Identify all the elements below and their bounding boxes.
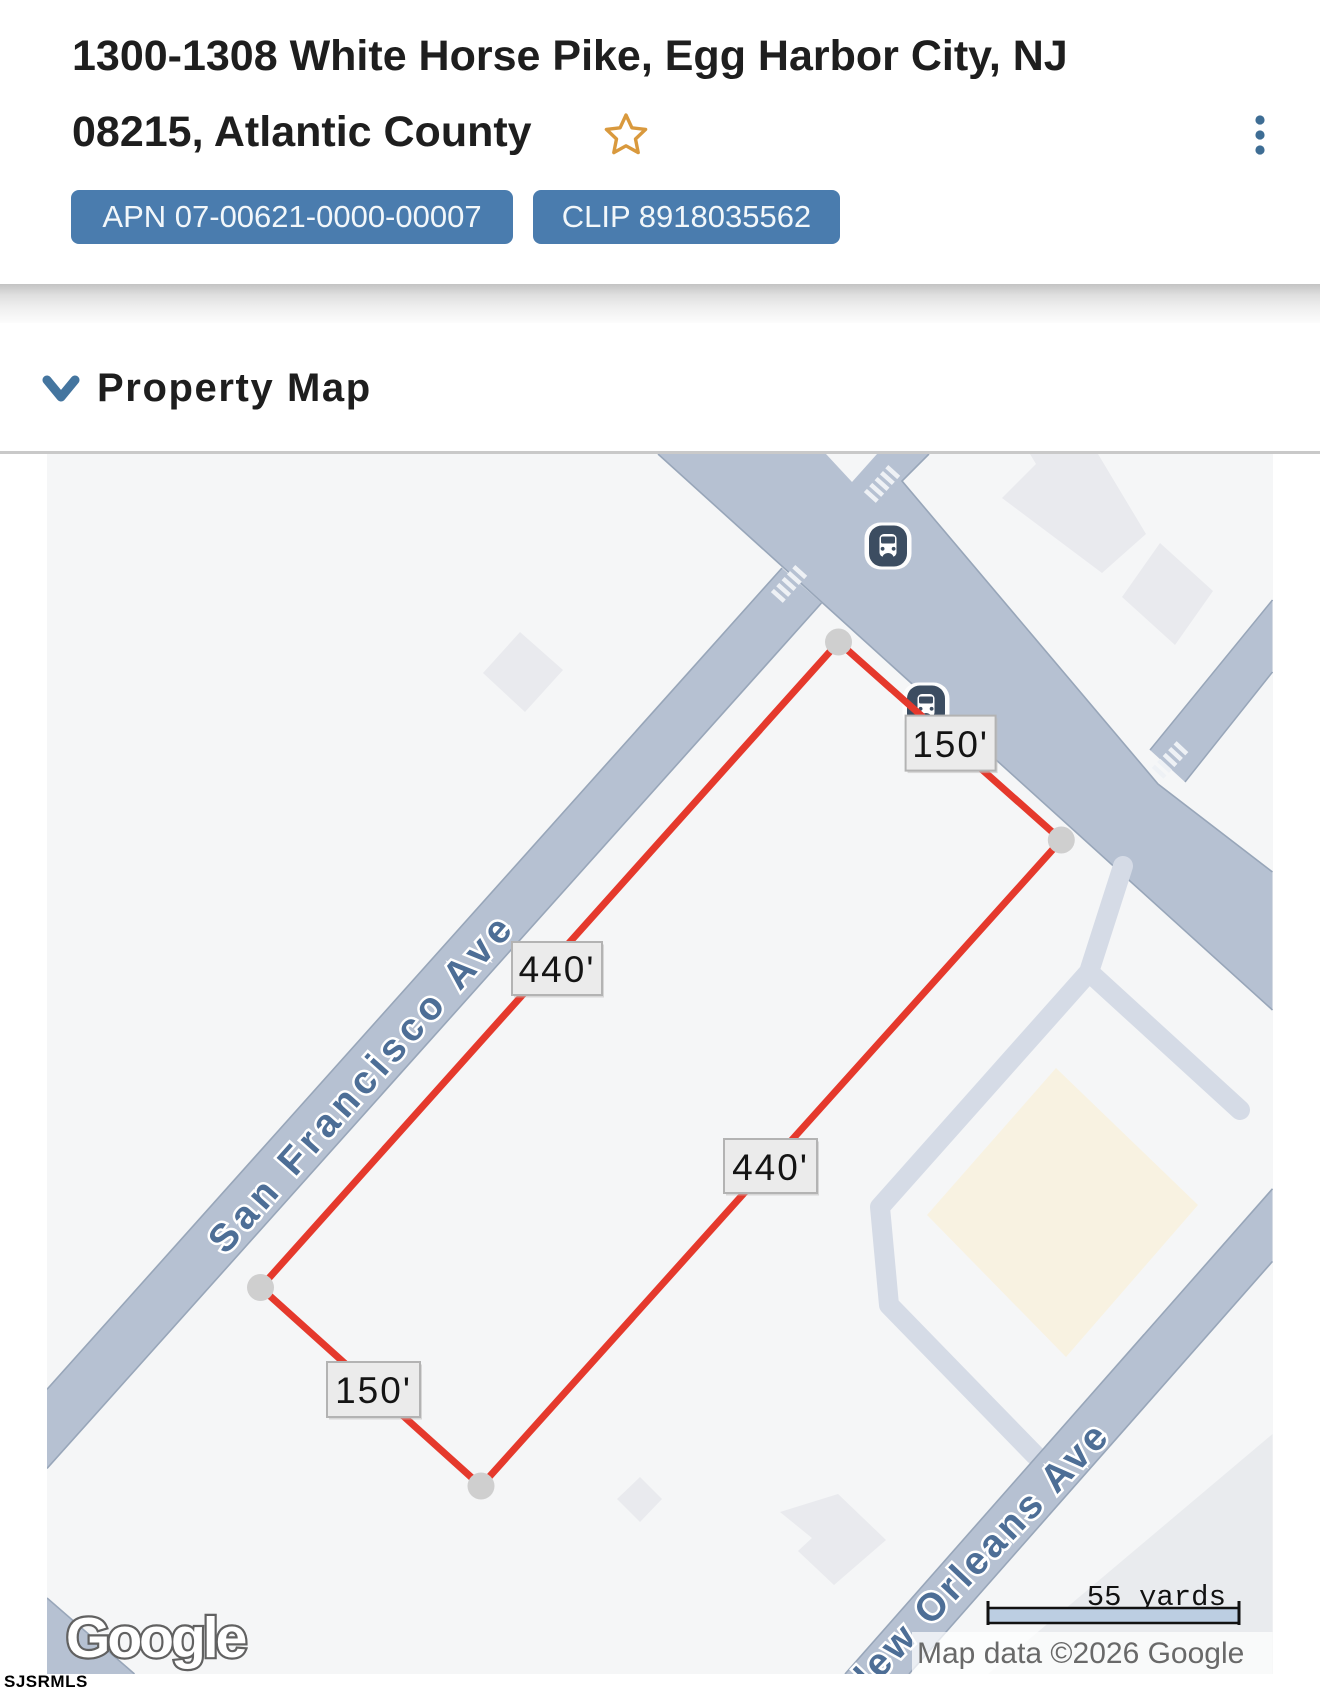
svg-text:Google: Google: [66, 1606, 246, 1670]
svg-text:440': 440': [732, 1147, 809, 1188]
svg-text:Map data ©2026 Google: Map data ©2026 Google: [917, 1637, 1244, 1670]
svg-text:150': 150': [335, 1370, 412, 1411]
svg-text:440': 440': [519, 949, 596, 990]
svg-text:150': 150': [912, 724, 989, 765]
